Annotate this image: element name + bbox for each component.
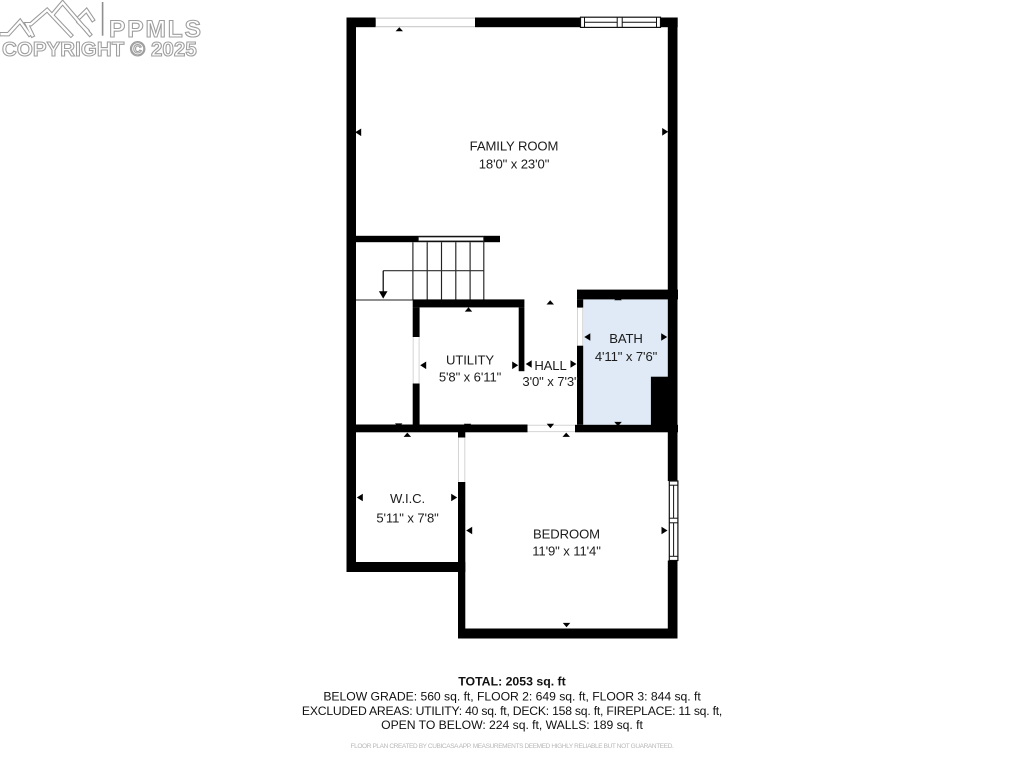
svg-text:BATH: BATH [609, 331, 643, 346]
svg-text:TOTAL: 2053 sq. ft: TOTAL: 2053 sq. ft [458, 674, 566, 688]
svg-text:UTILITY: UTILITY [446, 352, 494, 367]
svg-text:W.I.C.: W.I.C. [390, 491, 425, 506]
svg-text:11'9" x 11'4": 11'9" x 11'4" [532, 544, 601, 559]
svg-text:3'0" x 7'3": 3'0" x 7'3" [522, 374, 579, 389]
svg-text:BELOW GRADE: 560 sq. ft, FLOOR: BELOW GRADE: 560 sq. ft, FLOOR 2: 649 sq… [323, 689, 701, 703]
svg-text:FAMILY ROOM: FAMILY ROOM [470, 138, 559, 153]
svg-text:BEDROOM: BEDROOM [533, 526, 600, 541]
svg-text:EXCLUDED AREAS: UTILITY: 40 sq: EXCLUDED AREAS: UTILITY: 40 sq. ft, DECK… [302, 704, 722, 718]
svg-text:5'8" x 6'11": 5'8" x 6'11" [439, 369, 502, 384]
svg-text:OPEN TO BELOW: 224 sq. ft, WAL: OPEN TO BELOW: 224 sq. ft, WALLS: 189 sq… [381, 718, 643, 732]
svg-text:HALL: HALL [534, 358, 566, 373]
svg-text:5'11" x 7'8": 5'11" x 7'8" [376, 510, 439, 525]
svg-text:COPYRIGHT © 2025: COPYRIGHT © 2025 [2, 38, 197, 61]
svg-text:4'11" x 7'6": 4'11" x 7'6" [595, 349, 658, 364]
svg-text:FLOOR PLAN CREATED BY CUBICASA: FLOOR PLAN CREATED BY CUBICASA APP. MEAS… [351, 743, 674, 750]
svg-text:18'0" x 23'0": 18'0" x 23'0" [479, 156, 550, 171]
